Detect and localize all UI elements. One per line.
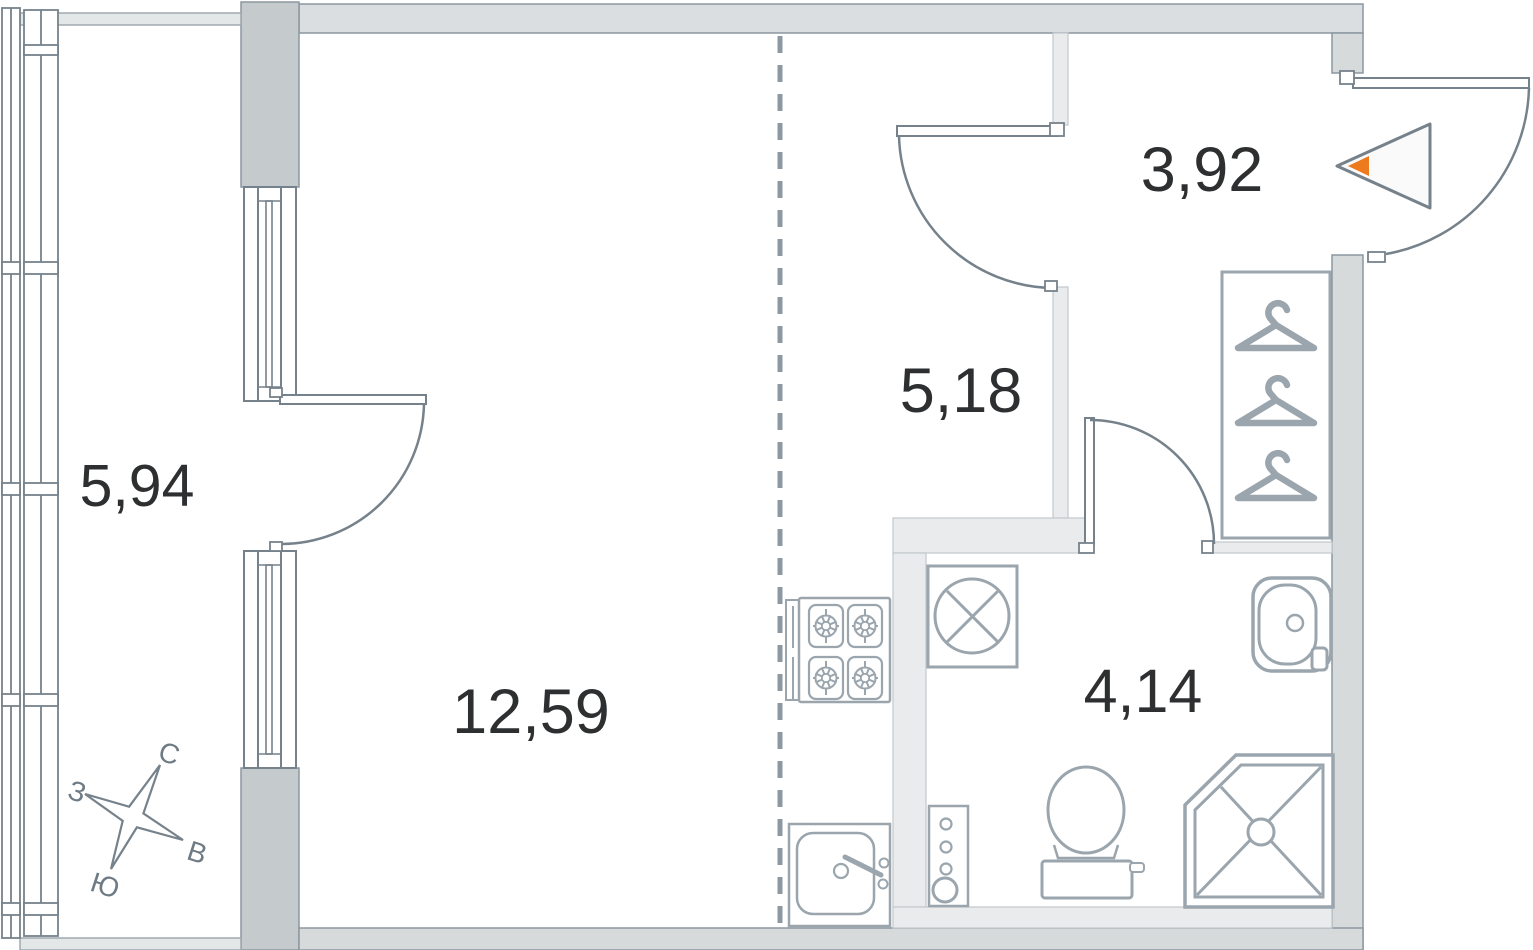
bathroom-door-swing-arc: [1090, 420, 1214, 544]
compass-west-label: З: [64, 774, 90, 809]
shower-drain: [1248, 819, 1274, 845]
windows: [244, 187, 296, 768]
compass-south-label: Ю: [87, 866, 123, 904]
compass-star: [85, 765, 183, 869]
balcony-door-swing-arc: [281, 404, 424, 544]
water-heater-knob: [933, 878, 957, 902]
bathroom-left-wall: [893, 553, 926, 907]
floor-plan: 5,94 12,59 5,18 3,92 4,14 С З В Ю: [0, 0, 1533, 950]
hallway-door-leaf: [897, 126, 1057, 136]
compass-north-label: С: [155, 736, 184, 772]
hallway-door-hinge: [1050, 123, 1064, 136]
bathroom-sink: [1253, 578, 1331, 671]
toilet-tank: [1042, 861, 1132, 898]
kitchen-sink-tap-dot: [879, 880, 888, 889]
burner-icon: [848, 657, 882, 699]
washing-machine: [928, 566, 1017, 667]
bathroom-door-leaf: [1085, 418, 1094, 545]
wardrobe: [1222, 272, 1330, 538]
bathroom-door: [1079, 418, 1214, 553]
right-wall-top-stub: [1332, 33, 1363, 73]
toilet: [1042, 767, 1144, 898]
balcony-door-leaf: [280, 395, 426, 404]
hall-partition-lower: [1053, 287, 1068, 518]
pillar-bottom-left: [241, 768, 299, 950]
water-heater-dot: [941, 842, 952, 853]
bathroom-area-label: 4,14: [1084, 657, 1203, 725]
hallway-area-label: 3,92: [1141, 135, 1264, 205]
pillar-top-left: [241, 2, 299, 187]
bathroom-bottom-band: [893, 907, 1332, 928]
bathroom-door-hinge: [1079, 543, 1094, 553]
toilet-flush-button: [1130, 863, 1144, 872]
entrance-arrow: [1337, 124, 1430, 208]
entrance-door-leaf: [1353, 78, 1529, 88]
entrance-door-hinge: [1340, 71, 1354, 84]
bathroom-door-latch: [1202, 541, 1213, 553]
stove: [786, 598, 890, 702]
bathroom-sink-drain: [1287, 615, 1303, 631]
hall-partition-upper: [1053, 33, 1068, 125]
balcony-door-hinge: [270, 388, 282, 397]
burner-icon: [809, 605, 843, 647]
shower-cabin: [1185, 755, 1333, 907]
balcony-glazing: [2, 8, 58, 938]
water-heater-dot: [941, 864, 952, 875]
kitchen-sink-drain: [834, 864, 848, 878]
floor-plan-page: 5,94 12,59 5,18 3,92 4,14 С З В Ю: [0, 0, 1533, 950]
bathroom-thin-wall: [1211, 542, 1332, 553]
right-wall: [1332, 255, 1363, 950]
balcony-bottom-band: [20, 938, 241, 950]
kitchen-sink: [789, 824, 890, 926]
hallway-door-latch: [1045, 281, 1057, 291]
balcony-door: [270, 388, 426, 551]
bathroom-top-wall: [893, 518, 1092, 553]
window-upper: [244, 187, 296, 401]
balcony-area-label: 5,94: [80, 453, 195, 519]
hallway-door-swing-arc: [899, 136, 1053, 288]
burner-icon: [848, 605, 882, 647]
entrance-door-latch: [1368, 252, 1385, 262]
top-wall: [299, 4, 1363, 33]
window-lower: [244, 551, 296, 768]
living-area-label: 12,59: [452, 677, 610, 747]
balcony-door-latch: [270, 542, 282, 551]
water-heater: [929, 806, 968, 906]
compass-rose: С З В Ю: [64, 736, 211, 905]
water-heater-dot: [941, 819, 952, 830]
kitchen-area-label: 5,18: [900, 356, 1023, 426]
bathroom-sink-pedestal: [1312, 648, 1327, 670]
kitchen-sink-tap-dot: [880, 859, 889, 868]
compass-east-label: В: [183, 835, 210, 870]
hallway-door: [897, 123, 1064, 291]
toilet-bowl: [1048, 767, 1124, 853]
burner-icon: [809, 657, 843, 699]
bottom-wall: [299, 928, 1363, 950]
